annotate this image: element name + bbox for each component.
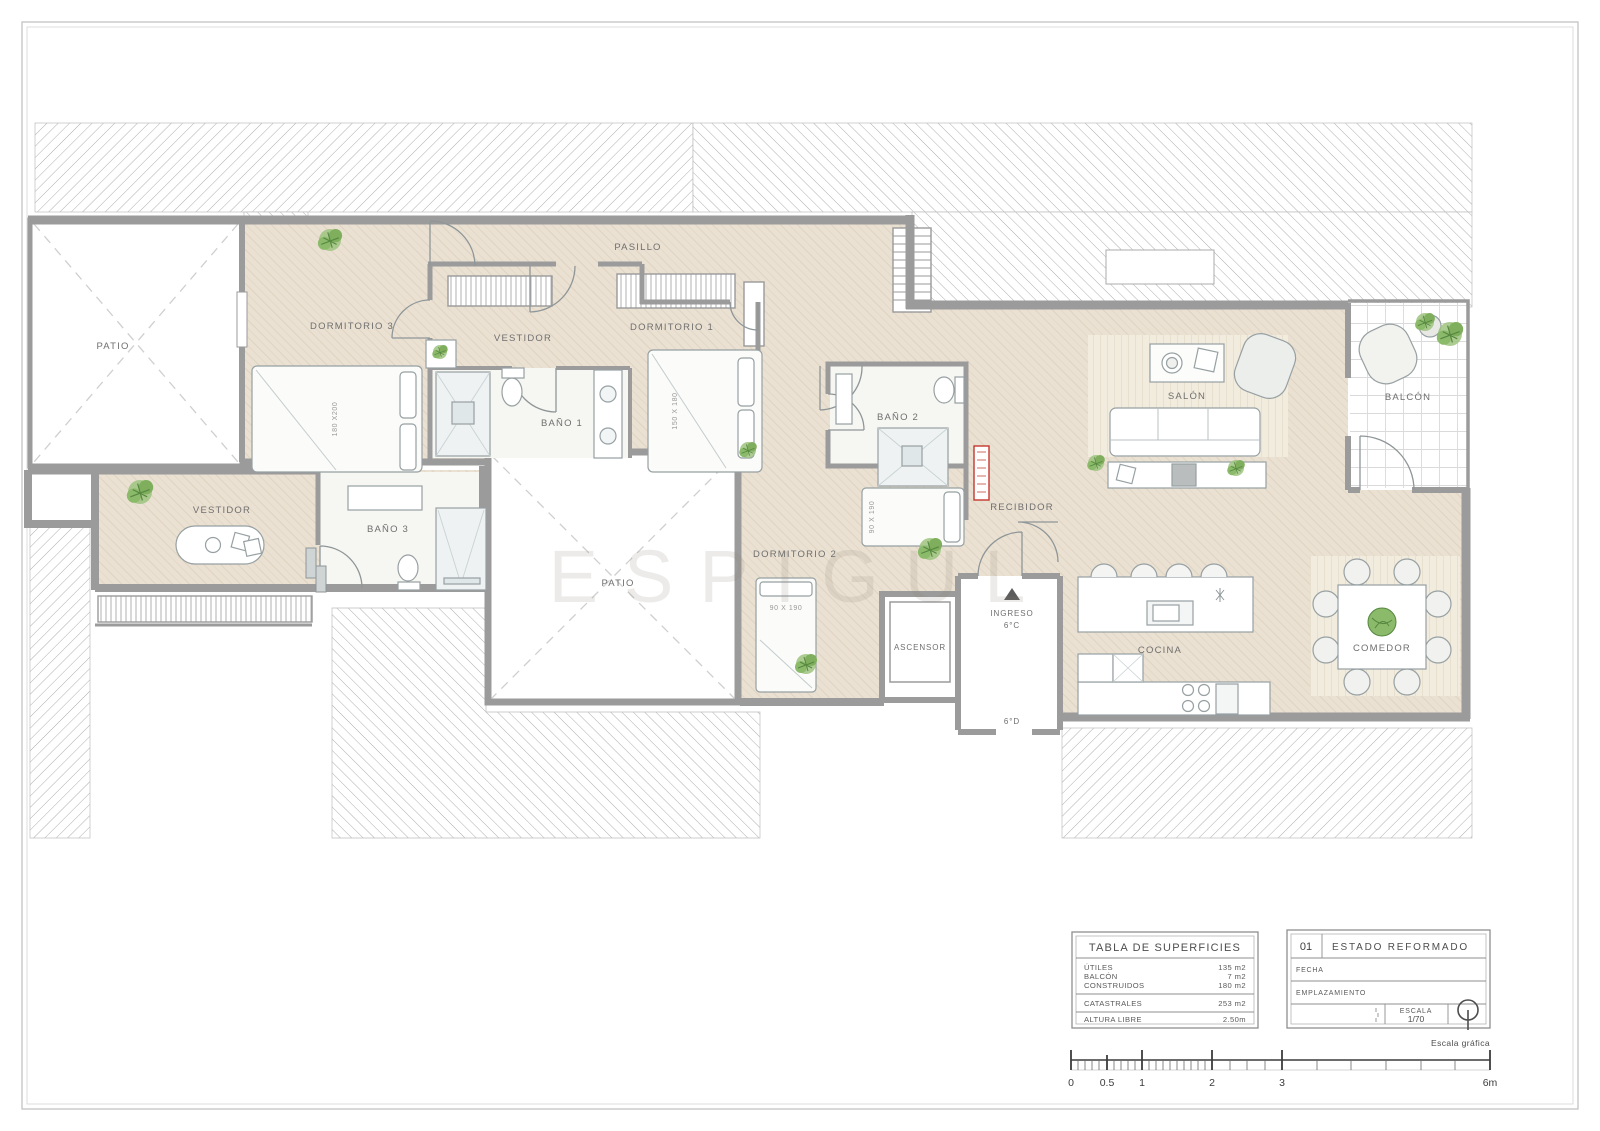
surface-row-label: CONSTRUIDOS <box>1084 981 1145 990</box>
scale-bar-caption: Escala gráfica <box>1431 1038 1490 1048</box>
room-label-ingreso: INGRESO <box>990 609 1033 618</box>
scale-tick-label: 1 <box>1139 1077 1145 1089</box>
neighbour-lightwell <box>1106 250 1214 284</box>
door-code-exit: 6°D <box>1004 717 1020 726</box>
scale-tick-label: 0 <box>1068 1077 1074 1089</box>
room-label-bano-3: BAÑO 3 <box>367 524 409 535</box>
room-label-pasillo: PASILLO <box>614 242 661 253</box>
room-label-dormitorio-3: DORMITORIO 3 <box>310 321 394 332</box>
escala-value: 1/70 <box>1408 1014 1425 1024</box>
surface-row-value: 135 m2 <box>1218 963 1246 972</box>
drawing-sheet: ESPIGUL PATIO DORMITORIO 3 VESTIDOR PASI… <box>0 0 1600 1131</box>
room-label-ascensor: ASCENSOR <box>894 643 946 652</box>
patio-left-area <box>30 220 242 466</box>
room-label-cocina: COCINA <box>1138 645 1182 656</box>
surface-row-value: 180 m2 <box>1218 981 1246 990</box>
bed-size-dormitorio-1: 150 X 180 <box>672 392 679 429</box>
tall-cabinet <box>744 282 764 346</box>
room-label-vestidor-top: VESTIDOR <box>494 333 552 344</box>
room-label-bano-2: BAÑO 2 <box>877 412 919 423</box>
sheet-title: ESTADO REFORMADO <box>1332 942 1469 953</box>
scale-tick-label: 6m <box>1483 1077 1498 1089</box>
surface-row-label: ÚTILES <box>1084 963 1113 972</box>
surface-row-value: 7 m2 <box>1228 972 1246 981</box>
fecha-label: FECHA <box>1296 967 1324 974</box>
surface-row-label: ALTURA LIBRE <box>1084 1015 1142 1024</box>
room-label-balcon: BALCÓN <box>1385 392 1431 403</box>
scale-tick-label: 2 <box>1209 1077 1215 1089</box>
room-label-comedor: COMEDOR <box>1353 643 1411 654</box>
surface-table-title: TABLA DE SUPERFICIES <box>1089 942 1241 954</box>
room-label-patio-left: PATIO <box>96 341 129 352</box>
scale-tick-label: 0.5 <box>1100 1077 1115 1089</box>
scale-bar: Escala gráfica 0 0.5 1 2 3 6m <box>1068 1038 1497 1089</box>
room-label-salon: SALÓN <box>1168 391 1206 402</box>
surface-row-label: BALCÓN <box>1084 972 1118 981</box>
bed-size-dormitorio-2a: 90 X 190 <box>869 501 876 534</box>
room-label-bano-1: BAÑO 1 <box>541 418 583 429</box>
room-label-vestidor-left: VESTIDOR <box>193 505 251 516</box>
closet-vestidor <box>448 276 552 306</box>
surface-row-value: 2.50m <box>1223 1015 1246 1024</box>
sheet-number: 01 <box>1300 941 1312 953</box>
room-label-recibidor: RECIBIDOR <box>990 502 1054 513</box>
bed-size-dormitorio-2b: 90 X 190 <box>770 605 803 612</box>
sliding-door <box>306 548 316 578</box>
surface-row-label: CATASTRALES <box>1084 999 1142 1008</box>
room-label-dormitorio-2: DORMITORIO 2 <box>753 549 837 560</box>
radiator <box>974 446 989 500</box>
room-label-patio-center: PATIO <box>601 578 634 589</box>
door-code-entry: 6°C <box>1004 621 1020 630</box>
scale-tick-label: 3 <box>1279 1077 1285 1089</box>
room-label-dormitorio-1: DORMITORIO 1 <box>630 322 714 333</box>
louvre-strip <box>98 596 312 622</box>
surface-table: TABLA DE SUPERFICIES ÚTILES 135 m2 BALCÓ… <box>1072 932 1258 1028</box>
floor-plan-svg: ESPIGUL PATIO DORMITORIO 3 VESTIDOR PASI… <box>0 0 1600 1131</box>
emplazamiento-label: EMPLAZAMIENTO <box>1296 990 1366 997</box>
surface-row-value: 253 m2 <box>1218 999 1246 1008</box>
title-block: 01 ESTADO REFORMADO FECHA EMPLAZAMIENTO … <box>1287 930 1490 1030</box>
bed-size-dormitorio-3: 180 X200 <box>332 402 339 437</box>
